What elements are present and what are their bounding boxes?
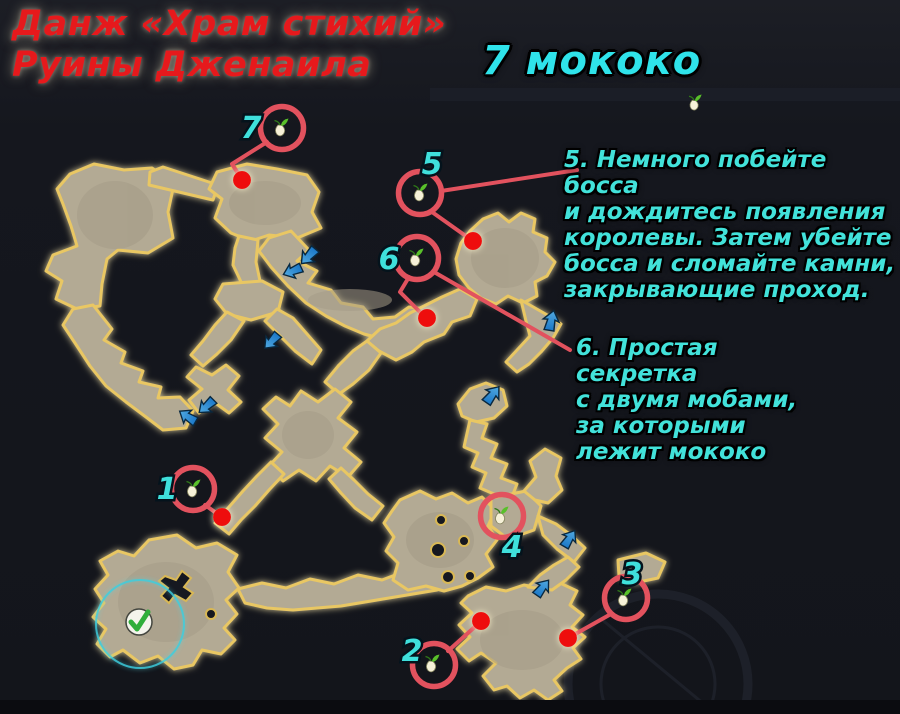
map-region [538,516,585,562]
location-dot [472,612,490,630]
location-dot [233,171,251,189]
map-region [464,420,517,499]
screenshot-root: 1 2 3 4 5 6 7 Данж «Храм стихий» Руины Д… [0,0,900,714]
marker-number: 4 [501,530,523,565]
note-5: 5. Немного побейте босса и дождитесь поя… [564,147,900,303]
mokoko-seed-icon [426,655,440,672]
mokoko-seed-icon [187,480,201,497]
note-line: 5. Немного побейте босса [564,147,900,199]
map-region [329,468,383,520]
marker-connector-line [441,170,577,191]
map-title-line1: Данж «Храм стихий» [12,4,446,45]
map-region [458,383,507,422]
note-6: 6. Простая секретка с двумя мобами, за к… [576,335,876,465]
marker-number: 6 [379,242,400,277]
note-line: закрывающие проход. [564,277,900,303]
decorative-seal [568,594,748,714]
note-line: и дождитесь появления [564,199,900,225]
marker-number: 5 [422,147,443,182]
map-region [191,312,244,366]
map-title-line2: Руины Дженаила [12,45,446,86]
mokoko-seed-icon [414,184,428,201]
map-region [524,449,562,503]
map-region [528,557,579,590]
map-region [63,305,193,430]
bottom-band [0,700,900,714]
marker-connector-line [432,212,470,239]
marker-number: 2 [402,634,423,669]
note-line: королевы. Затем убейте [564,225,900,251]
marker-number: 3 [622,557,643,592]
mokoko-count: 7 мококо [482,38,701,84]
note-line: с двумя мобами, [576,387,876,413]
location-dot [418,309,436,327]
mokoko-seed-icon [275,119,289,136]
mokoko-seed-icon [410,249,424,266]
location-dot [464,232,482,250]
map-region [233,236,260,286]
note-line: за которыми [576,413,876,439]
map-region [325,341,381,394]
location-dot [213,508,231,526]
note-line: 6. Простая [576,335,876,361]
marker-number: 1 [157,472,178,507]
note-line: секретка [576,361,876,387]
note-line: босса и сломайте камни, [564,251,900,277]
page-title: Данж «Храм стихий» Руины Дженаила [12,4,446,86]
location-dot [559,629,577,647]
marker-number: 7 [241,111,262,146]
mokoko-seed-icon [689,94,702,110]
note-line: лежит мококо [576,439,876,465]
